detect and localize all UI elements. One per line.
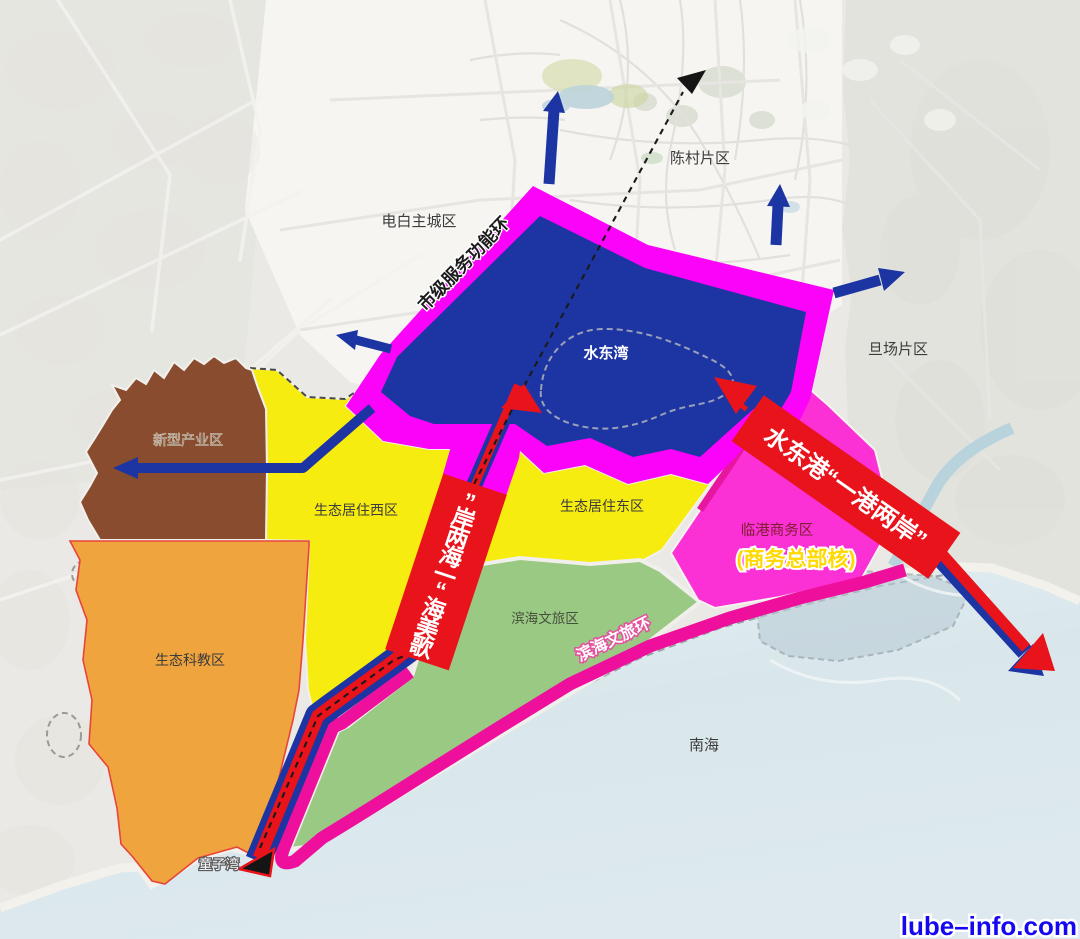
svg-text:旦场片区: 旦场片区	[868, 341, 928, 358]
svg-text:生态居住东区: 生态居住东区	[560, 498, 644, 514]
svg-text:滨海文旅区: 滨海文旅区	[511, 611, 579, 626]
svg-text:临港商务区: 临港商务区	[741, 522, 814, 539]
svg-text:生态科教区: 生态科教区	[155, 652, 225, 668]
svg-text:电白主城区: 电白主城区	[381, 213, 456, 230]
svg-text:童子湾: 童子湾	[199, 856, 240, 872]
svg-text:lube–info.com: lube–info.com	[901, 911, 1077, 939]
svg-text:陈村片区: 陈村片区	[670, 149, 730, 167]
svg-text:南海: 南海	[689, 737, 719, 754]
svg-text:生态居住西区: 生态居住西区	[314, 502, 398, 518]
svg-text:新型产业区: 新型产业区	[153, 432, 223, 448]
svg-text:水东湾: 水东湾	[583, 344, 628, 362]
svg-text:(商务总部核): (商务总部核)	[737, 547, 856, 571]
